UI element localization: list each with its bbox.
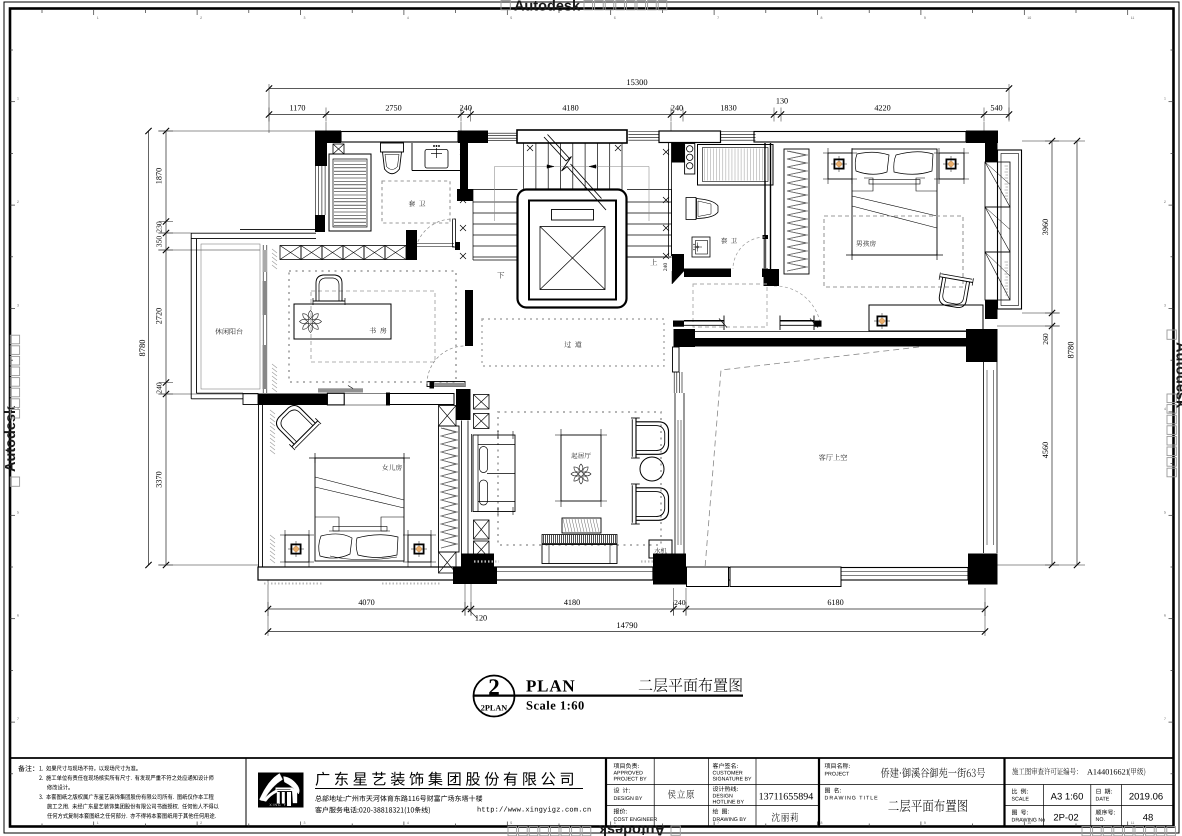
svg-text:2P-02: 2P-02 — [1053, 813, 1078, 824]
svg-text:NO.: NO. — [1096, 817, 1105, 823]
svg-text:PLAN: PLAN — [526, 677, 575, 696]
svg-text:8780: 8780 — [137, 340, 147, 357]
svg-text:4: 4 — [407, 821, 409, 825]
svg-text:240: 240 — [674, 598, 686, 607]
svg-text:9: 9 — [924, 16, 926, 20]
svg-text:48: 48 — [1143, 813, 1154, 824]
svg-text:A3 1:60: A3 1:60 — [1051, 792, 1084, 803]
svg-text:Scale 1:60: Scale 1:60 — [526, 699, 585, 713]
svg-text:3: 3 — [17, 304, 19, 308]
svg-text:4560: 4560 — [1041, 442, 1050, 458]
svg-text:240: 240 — [155, 382, 164, 394]
svg-text:2720: 2720 — [155, 308, 164, 324]
svg-text:2: 2 — [200, 16, 202, 20]
svg-text:DRAWING TITLE: DRAWING TITLE — [825, 796, 879, 802]
svg-text:6: 6 — [17, 614, 19, 618]
svg-text:1: 1 — [97, 821, 99, 825]
svg-text:1: 1 — [17, 97, 19, 101]
svg-text:1: 1 — [1164, 97, 1166, 101]
svg-text:Autodesk: Autodesk — [1173, 342, 1182, 409]
svg-text:9: 9 — [924, 821, 926, 825]
svg-text:4180: 4180 — [564, 598, 580, 607]
svg-text:DESIGN BY: DESIGN BY — [614, 796, 643, 802]
svg-text:4220: 4220 — [874, 104, 890, 113]
svg-text:Autodesk: Autodesk — [598, 822, 665, 836]
svg-text:5: 5 — [1164, 510, 1166, 514]
svg-text:Autodesk: Autodesk — [3, 405, 19, 472]
svg-text:7: 7 — [17, 717, 19, 721]
svg-text:230: 230 — [155, 221, 164, 233]
svg-text:1870: 1870 — [155, 168, 164, 184]
svg-text:3370: 3370 — [155, 471, 164, 487]
svg-text:4180: 4180 — [562, 104, 578, 113]
svg-text:5: 5 — [17, 510, 19, 514]
svg-text:SIGNATURE BY: SIGNATURE BY — [713, 777, 753, 783]
svg-text:350: 350 — [155, 236, 164, 248]
svg-text:1170: 1170 — [289, 104, 305, 113]
svg-text:240: 240 — [671, 104, 683, 113]
svg-text:120: 120 — [475, 614, 487, 623]
svg-text:2019.06: 2019.06 — [1129, 792, 1163, 803]
svg-text:7: 7 — [717, 16, 719, 20]
svg-text:260: 260 — [1041, 333, 1050, 345]
svg-text:PROJECT BY: PROJECT BY — [614, 777, 648, 783]
svg-text:6180: 6180 — [827, 598, 843, 607]
svg-text:15300: 15300 — [626, 77, 647, 87]
svg-text:10: 10 — [1027, 16, 1031, 20]
svg-text:6: 6 — [1164, 614, 1166, 618]
svg-text:240: 240 — [663, 263, 669, 272]
svg-text:A144016621: A144016621 — [1087, 768, 1130, 777]
svg-text:SCALE: SCALE — [1012, 797, 1030, 803]
svg-text:XING YI: XING YI — [269, 803, 288, 807]
svg-text:14790: 14790 — [616, 620, 637, 630]
svg-text:7: 7 — [1164, 717, 1166, 721]
svg-text:4: 4 — [407, 16, 409, 20]
svg-text:5: 5 — [510, 16, 512, 20]
svg-text:240: 240 — [460, 104, 472, 113]
svg-text:http://www.xingyigz.com.cn: http://www.xingyigz.com.cn — [477, 806, 591, 815]
svg-text:130: 130 — [776, 97, 788, 106]
svg-text:3960: 3960 — [1041, 219, 1050, 235]
svg-text:11: 11 — [1131, 16, 1135, 20]
svg-text:8: 8 — [821, 821, 823, 825]
svg-text:PROJECT: PROJECT — [825, 772, 850, 778]
svg-text:DATE: DATE — [1096, 797, 1110, 803]
svg-text:1830: 1830 — [720, 104, 736, 113]
svg-text:1: 1 — [97, 16, 99, 20]
svg-text:540: 540 — [990, 104, 1002, 113]
svg-text:2: 2 — [1164, 200, 1166, 204]
svg-text:COST ENGINEER: COST ENGINEER — [614, 817, 658, 823]
svg-text:DRAWING BY: DRAWING BY — [713, 817, 747, 823]
svg-text:Autodesk: Autodesk — [514, 0, 581, 15]
svg-text:8780: 8780 — [1066, 342, 1076, 359]
svg-text:2: 2 — [17, 200, 19, 204]
svg-text:3: 3 — [304, 821, 306, 825]
svg-text:11: 11 — [1131, 821, 1135, 825]
svg-text:2750: 2750 — [385, 104, 401, 113]
svg-text:5: 5 — [510, 821, 512, 825]
svg-text:DRAWING No: DRAWING No — [1012, 818, 1046, 824]
svg-text:4070: 4070 — [358, 598, 374, 607]
svg-text:3: 3 — [304, 16, 306, 20]
svg-text:6: 6 — [614, 16, 616, 20]
svg-text:HOTLINE BY: HOTLINE BY — [713, 800, 745, 806]
svg-text:13711655894: 13711655894 — [759, 792, 814, 803]
svg-text:8: 8 — [821, 16, 823, 20]
svg-text:2: 2 — [200, 821, 202, 825]
svg-text:4: 4 — [1164, 407, 1166, 411]
svg-text:2PLAN: 2PLAN — [481, 704, 507, 713]
svg-text:3: 3 — [1164, 304, 1166, 308]
